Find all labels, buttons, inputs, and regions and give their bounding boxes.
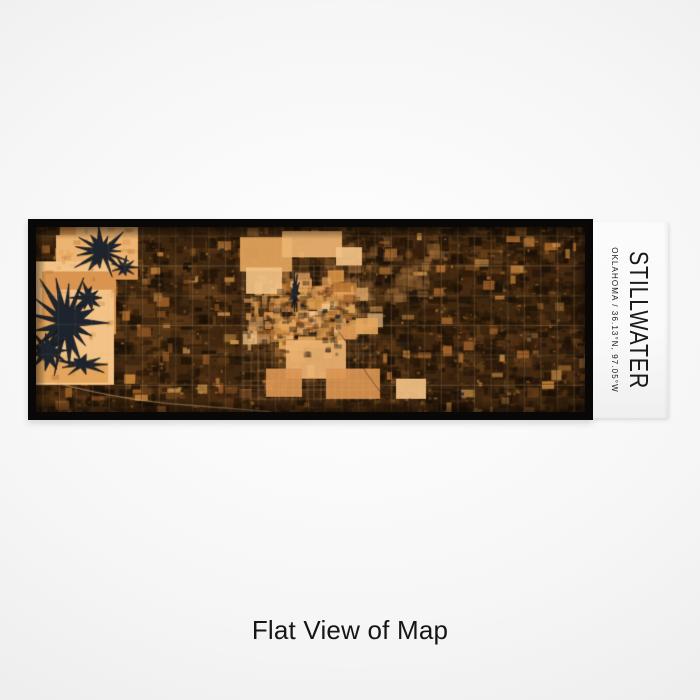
label-rotated-text: STILLWATER OKLAHOMA / 36.13°N, 97.05°W [610, 210, 652, 430]
product-image: STILLWATER OKLAHOMA / 36.13°N, 97.05°W F… [0, 0, 700, 700]
map-title: STILLWATER [626, 230, 652, 410]
map-subtitle: OKLAHOMA / 36.13°N, 97.05°W [610, 210, 619, 430]
caption: Flat View of Map [0, 615, 700, 646]
map-canvas [36, 227, 585, 412]
map-frame [28, 219, 593, 420]
label-panel: STILLWATER OKLAHOMA / 36.13°N, 97.05°W [593, 222, 668, 418]
map-print: STILLWATER OKLAHOMA / 36.13°N, 97.05°W [28, 219, 668, 420]
